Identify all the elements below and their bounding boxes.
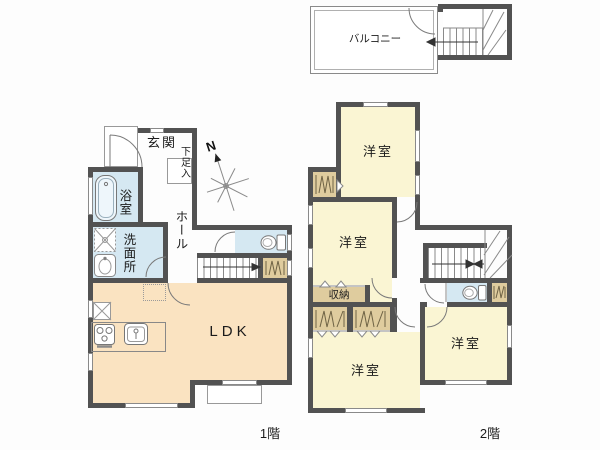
refrigerator-space: [93, 302, 111, 320]
floor-label-1f: 1階: [250, 427, 290, 442]
wall: [438, 4, 443, 12]
wall: [507, 4, 512, 60]
stairs-to-balcony: [443, 28, 483, 55]
floor-closet-2fd: [492, 283, 507, 302]
room-label-bath: 浴室: [117, 183, 131, 221]
window: [415, 130, 420, 162]
room-label-room-b: 洋室: [326, 236, 382, 251]
window: [88, 177, 93, 215]
wall: [192, 128, 197, 230]
stairs-1f: [197, 258, 258, 278]
floor-closet-2fa: [313, 172, 336, 197]
room-label-room-d: 洋室: [438, 337, 494, 352]
stairs-2f: [428, 248, 484, 278]
floorplan-canvas: N 玄関 下足入 浴室 洗面所 ホール LDK バルコニー 洋室 洋室 収納 洋…: [0, 0, 600, 450]
wall: [420, 307, 425, 385]
wall: [138, 128, 197, 133]
floor-room-b-nook: [370, 285, 392, 302]
wall: [197, 253, 292, 258]
wall: [438, 55, 512, 60]
window: [287, 260, 292, 276]
wall: [387, 408, 425, 413]
room-label-washroom: 洗面所: [121, 227, 135, 279]
wall: [423, 243, 487, 248]
wall: [507, 230, 512, 385]
wall: [390, 305, 397, 332]
door-arc-toilet-2f: [425, 284, 444, 303]
wall: [138, 167, 143, 227]
wall: [487, 283, 492, 302]
window: [507, 325, 512, 348]
floor-toilet-1f: [235, 230, 287, 253]
wall: [88, 167, 143, 172]
door-arc-room-c: [395, 307, 415, 327]
room-label-room-a: 洋室: [350, 145, 406, 160]
window: [125, 403, 178, 408]
floor-label-2f: 2階: [470, 427, 510, 442]
wall: [447, 302, 512, 307]
wall: [308, 408, 345, 413]
wall: [197, 225, 292, 230]
wall: [336, 107, 341, 197]
floor-closet-2fb: [313, 307, 347, 330]
room-label-shoe-cabinet: 下足入: [178, 137, 190, 187]
compass-north-label: N: [204, 138, 218, 155]
wall: [423, 243, 428, 283]
room-label-balcony: バルコニー: [330, 33, 420, 45]
wall: [392, 202, 397, 278]
window: [363, 102, 388, 107]
room-label-ldk: LDK: [195, 323, 265, 340]
wall: [438, 4, 512, 9]
floor-closet-2fc: [353, 307, 390, 330]
window: [308, 205, 313, 225]
window: [445, 380, 487, 385]
window: [308, 338, 313, 358]
window: [150, 128, 164, 133]
window: [88, 353, 93, 371]
wall: [308, 197, 397, 202]
pantry-dotted-area: [143, 284, 166, 301]
wall: [420, 278, 425, 283]
terrace-step: [207, 385, 262, 404]
wall: [420, 380, 445, 385]
room-label-room-c: 洋室: [338, 364, 394, 379]
window: [345, 408, 387, 413]
wall: [258, 258, 263, 278]
window: [308, 248, 313, 268]
room-label-hall: ホール: [173, 206, 187, 254]
floor-ldk-lower: [93, 380, 190, 403]
wall: [487, 380, 512, 385]
door-arc-toilet-1f: [215, 232, 235, 252]
kitchen-counter: [91, 322, 166, 352]
floor-closet-1f: [263, 258, 287, 278]
window: [415, 175, 420, 195]
door-arc-room-a: [397, 202, 417, 222]
floor-toilet-2f: [447, 283, 487, 302]
wall: [347, 305, 353, 332]
entry-porch: [104, 126, 138, 167]
wall: [197, 278, 292, 283]
compass-north-arrowhead: [212, 153, 221, 163]
room-label-storage: 収納: [314, 289, 364, 301]
wall: [415, 102, 420, 230]
compass-icon: N: [192, 131, 257, 217]
wall: [163, 227, 168, 278]
window: [287, 234, 292, 251]
wall: [415, 225, 512, 230]
wall: [423, 278, 512, 283]
